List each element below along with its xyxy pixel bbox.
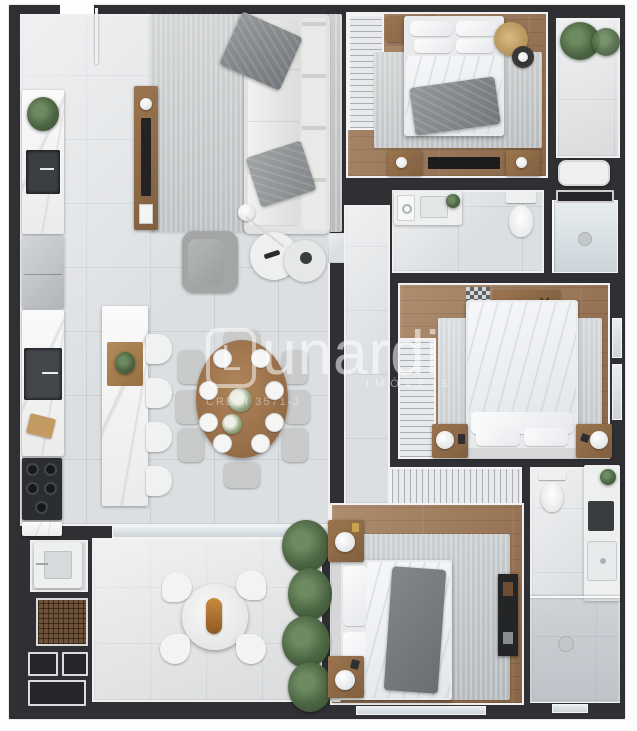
table-lamp xyxy=(335,532,355,552)
side-table-dark xyxy=(512,46,534,68)
candle-deco xyxy=(352,523,359,532)
bedroom2-window xyxy=(612,318,622,358)
pillow xyxy=(476,428,520,446)
burner xyxy=(26,482,39,495)
terrace-chair xyxy=(160,634,190,664)
table-lamp xyxy=(436,431,454,449)
balcony-niche xyxy=(556,190,614,203)
bar-stool xyxy=(146,466,172,496)
refrigerator-door-split xyxy=(24,274,62,275)
laundry-tub xyxy=(34,542,82,588)
bathroom3-toilet xyxy=(538,470,566,514)
vanity-sink xyxy=(420,196,448,218)
cooktop xyxy=(22,458,62,520)
duvet xyxy=(468,302,576,414)
counter-stub xyxy=(22,522,62,536)
shower1-drain xyxy=(578,232,592,246)
watermark-logo-box: L xyxy=(206,328,256,388)
burner xyxy=(44,482,57,495)
console-deco xyxy=(396,157,407,168)
shower3-area xyxy=(530,598,620,702)
vanity-sink xyxy=(587,541,617,581)
bedroom3-blanket xyxy=(384,566,447,693)
dinner-plate xyxy=(265,413,284,432)
burner xyxy=(44,463,57,476)
vanity-cabinet xyxy=(588,501,614,531)
flower-centerpiece-2 xyxy=(222,414,242,434)
washer xyxy=(397,195,415,221)
bar-stool xyxy=(146,334,172,364)
candle xyxy=(518,52,528,62)
laundry-faucet xyxy=(36,563,48,565)
dining-chair xyxy=(178,428,204,462)
barbecue-grill xyxy=(36,598,88,646)
vanity-plant xyxy=(446,194,460,208)
kitchen-island xyxy=(102,306,148,506)
utility-box-wide xyxy=(28,680,86,706)
pillow xyxy=(456,21,498,36)
terrace-tray xyxy=(206,598,222,634)
pillow xyxy=(343,566,367,626)
armchair xyxy=(182,231,238,293)
bathroom1-toilet xyxy=(506,192,536,238)
bedroom2-nightstand-right xyxy=(576,424,612,458)
candle-deco xyxy=(350,659,360,670)
table-lamp xyxy=(335,670,355,690)
board-greens xyxy=(115,352,135,374)
coffee-table-bowl xyxy=(300,252,312,264)
bathroom1-vanity xyxy=(394,191,462,225)
sofa-back-cushions xyxy=(302,18,326,230)
watermark-subtitle: IMÓVEIS xyxy=(366,378,454,390)
laundry-basin xyxy=(44,551,72,579)
terrace-plants xyxy=(288,568,332,620)
dinner-plate xyxy=(199,413,218,432)
faucet xyxy=(40,168,54,170)
refrigerator xyxy=(22,236,64,308)
bar-stool xyxy=(146,378,172,408)
bathroom3-window xyxy=(552,704,588,713)
bathroom3-vanity xyxy=(584,465,620,601)
washer-door xyxy=(402,204,412,214)
kitchen-sink-upper xyxy=(26,150,60,194)
tv-console-deco-2 xyxy=(503,632,513,644)
watermark-creci: CRECI 3571-J xyxy=(206,396,301,408)
burner xyxy=(26,463,39,476)
burner-small xyxy=(35,501,48,514)
bedroom2-window-2 xyxy=(612,364,622,420)
pillow xyxy=(410,21,452,36)
sink-drain xyxy=(600,558,606,564)
bedroom3-nightstand-top xyxy=(328,520,364,562)
toilet-bowl xyxy=(541,482,563,512)
balcony-bench-tub xyxy=(558,160,610,186)
terrace-chair xyxy=(236,570,266,600)
tv-screen xyxy=(141,118,151,196)
watermark-brand-initial: L xyxy=(221,337,241,379)
dining-chair xyxy=(282,428,308,462)
kitchen-sink-lower xyxy=(24,348,62,400)
terrace-plants xyxy=(282,520,330,572)
pillow xyxy=(456,39,494,53)
shower3-drain xyxy=(558,636,574,652)
terrace-plants xyxy=(282,616,330,668)
tv-console-deco xyxy=(503,582,513,596)
shower1-glass xyxy=(552,200,554,273)
island-cutting-board xyxy=(107,342,143,386)
bedroom3-wardrobe xyxy=(390,467,522,505)
nightstand-deco xyxy=(580,433,590,443)
tv-panel xyxy=(134,86,158,230)
bedroom2-nightstand-left xyxy=(432,424,468,458)
tv-deco-vase xyxy=(140,98,152,110)
bedroom3-window xyxy=(356,706,486,715)
bedroom3-tv-console xyxy=(498,574,518,656)
table-lamp xyxy=(590,431,608,449)
dinner-plate xyxy=(213,434,232,453)
toilet-tank xyxy=(506,192,536,203)
floor-plan: ⨯ xyxy=(0,0,637,731)
armchair-cushion xyxy=(188,239,224,285)
vanity-plant xyxy=(600,469,616,485)
bar-stool xyxy=(146,422,172,452)
bedroom3-nightstand-bottom xyxy=(328,656,364,698)
nightstand-deco xyxy=(458,434,465,444)
dining-chair xyxy=(224,462,260,488)
balcony-plant-2 xyxy=(592,28,620,56)
entry-door-leaf xyxy=(95,8,98,64)
bedroom2-bed xyxy=(466,300,578,456)
headboard xyxy=(462,448,582,458)
pillow xyxy=(414,39,452,53)
terrace-plants xyxy=(288,662,332,712)
console-tv xyxy=(428,157,500,169)
utility-box xyxy=(28,652,58,676)
toilet-tank xyxy=(538,470,566,480)
bedroom1-media-console xyxy=(388,150,540,176)
terrace-chair xyxy=(236,634,266,664)
faucet-2 xyxy=(42,372,58,374)
console-deco xyxy=(516,157,527,168)
tv-deco-frame xyxy=(139,204,153,224)
utility-box xyxy=(62,652,88,676)
terrace-chair xyxy=(162,572,192,602)
pillow xyxy=(524,428,568,446)
dinner-plate xyxy=(251,434,270,453)
toilet-bowl xyxy=(509,205,533,237)
entry-opening xyxy=(60,3,94,14)
counter-plant xyxy=(27,97,59,131)
